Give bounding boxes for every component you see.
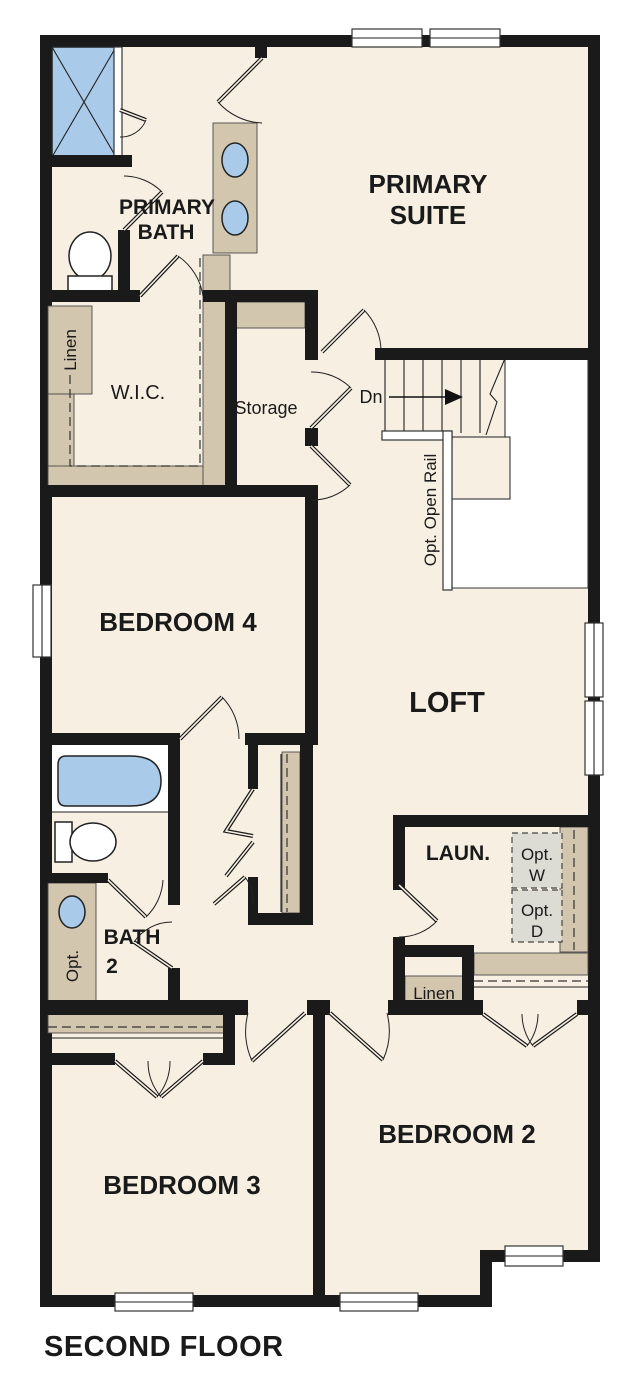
- window: [585, 701, 603, 775]
- bedroom2-closet-shelf: [474, 953, 588, 975]
- window: [352, 29, 422, 47]
- label-primary-suite-line2: SUITE: [390, 200, 467, 230]
- stair-railing: [443, 431, 452, 590]
- label-loft: LOFT: [409, 687, 485, 719]
- label-primary-suite-line1: PRIMARY: [369, 169, 488, 199]
- floor-plan-page: PRIMARY BATH PRIMARY SUITE W.I.C. Linen …: [0, 0, 642, 1380]
- window: [115, 1293, 193, 1311]
- label-opt-washer-line2: W: [529, 866, 545, 885]
- label-opt-washer-line1: Opt.: [521, 845, 553, 864]
- label-bedroom4: BEDROOM 4: [99, 607, 257, 637]
- toilet-icon: [55, 822, 116, 862]
- bedroom3-closet-shelf: [48, 1012, 225, 1033]
- label-bath2-opt: Opt.: [63, 950, 82, 982]
- label-wic: W.I.C.: [111, 382, 165, 404]
- window: [33, 585, 51, 657]
- sink-icon: [222, 143, 248, 177]
- toilet-icon: [68, 232, 112, 296]
- sink-icon: [59, 896, 85, 928]
- shower-icon: [52, 47, 122, 157]
- label-opt-open-rail: Opt. Open Rail: [421, 454, 440, 566]
- label-bedroom2: BEDROOM 2: [378, 1119, 535, 1149]
- page-title: SECOND FLOOR: [44, 1331, 284, 1363]
- label-linen-upper: Linen: [61, 329, 80, 371]
- bedroom4-closet-shelf: [282, 752, 300, 913]
- window: [430, 29, 500, 47]
- label-opt-dryer-line2: D: [531, 922, 543, 941]
- label-stairs-down: Dn: [359, 387, 382, 407]
- label-laundry: LAUN.: [426, 842, 490, 865]
- floor-plan: PRIMARY BATH PRIMARY SUITE W.I.C. Linen …: [0, 0, 642, 1380]
- label-linen-lower: Linen: [413, 984, 455, 1003]
- window: [505, 1246, 563, 1266]
- window: [585, 623, 603, 697]
- stair-landing: [452, 437, 510, 499]
- label-primary-bath-line2: BATH: [138, 221, 195, 244]
- stair-railing: [382, 431, 452, 440]
- window: [340, 1293, 418, 1311]
- label-bedroom3: BEDROOM 3: [103, 1170, 260, 1200]
- label-opt-dryer-line1: Opt.: [521, 901, 553, 920]
- storage-shelf: [232, 302, 305, 328]
- label-primary-bath-line1: PRIMARY: [119, 196, 215, 219]
- label-storage: Storage: [234, 398, 297, 418]
- label-bath2-line2: 2: [106, 955, 118, 978]
- label-bath2-line1: BATH: [104, 926, 161, 949]
- bathtub-icon: [58, 756, 161, 806]
- sink-icon: [222, 201, 248, 235]
